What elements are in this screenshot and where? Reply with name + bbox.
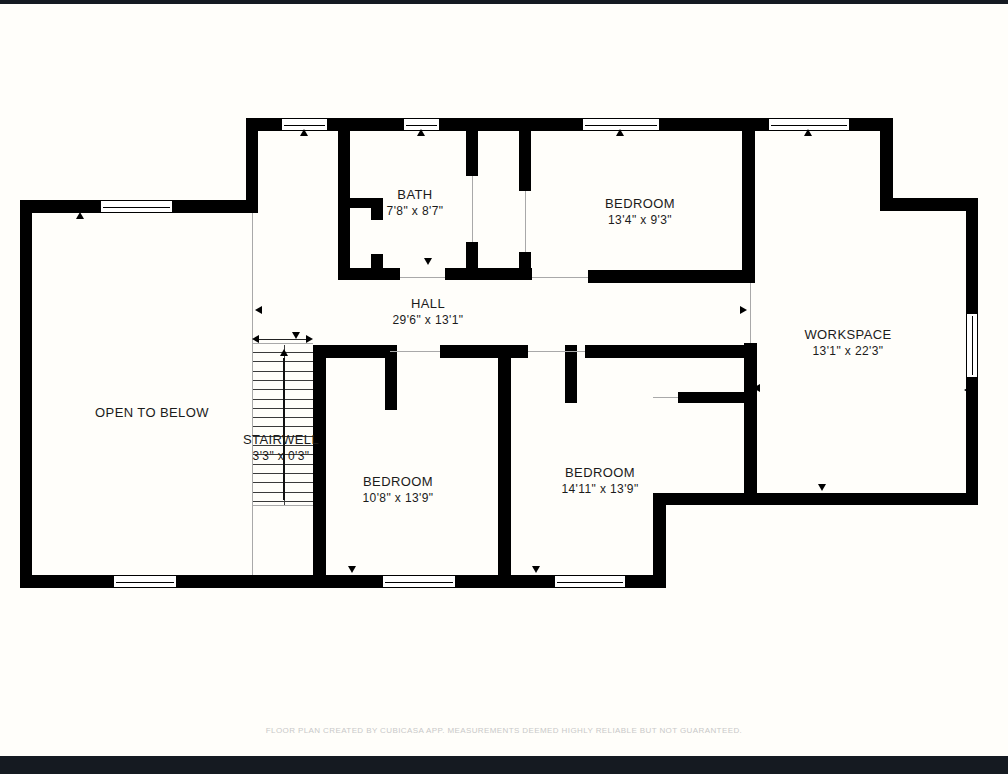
wall [678,392,753,403]
wall [742,118,755,283]
door-marker-up-icon [616,129,624,136]
window [382,575,456,588]
wall [653,493,666,588]
door-marker-down-icon [521,182,529,189]
window [113,575,177,588]
stair-measure-line [256,339,310,340]
stair-direction-arrow [283,358,285,500]
window [966,313,978,378]
room-boundary-line [400,277,445,278]
door-marker-down-icon [532,566,540,573]
room-boundary-line [252,343,313,344]
window [554,575,626,588]
wall [498,345,511,588]
door-marker-down-icon [348,566,356,573]
measure-arrow-icon [252,335,259,343]
door-marker-down-icon [818,484,826,491]
room-boundary-line [252,213,253,575]
measure-arrow-icon [306,335,313,343]
room-name: WORKSPACE [804,327,891,343]
wall [246,118,258,213]
door-marker-down-icon [424,258,432,265]
window [100,200,173,213]
door-marker-up-icon [300,129,308,136]
door-marker-right-icon [740,306,747,314]
room-dimensions: 10'8" x 13'9" [362,490,433,506]
wall [519,252,531,280]
wall [385,345,397,410]
floorplan-page: BATH7'8" x 8'7"BEDROOM13'4" x 9'3"HALL29… [0,0,1008,774]
wall [565,345,577,403]
footer-disclaimer: FLOOR PLAN CREATED BY CUBICASA APP. MEAS… [0,726,1008,735]
wall [371,198,383,220]
stair-tread [253,501,313,502]
wall [744,343,757,505]
room-dimensions: 13'4" x 9'3" [605,212,675,228]
room-name: HALL [392,296,463,312]
measure-arrow-icon [292,332,300,339]
wall [585,345,753,358]
bottom-letterbox-bar [0,756,1008,774]
stair-arrowhead-icon [280,349,288,356]
room-boundary-line [390,351,440,352]
wall [313,345,326,588]
door-marker-up-icon [804,129,812,136]
room-label-bedroom-top: BEDROOM13'4" x 9'3" [605,196,675,228]
room-name: STAIRWELL [243,432,319,448]
room-name: BEDROOM [362,474,433,490]
room-boundary-line [253,505,313,506]
room-label-hall: HALL29'6" x 13'1" [392,296,463,328]
room-boundary-line [653,397,678,398]
floorplan: BATH7'8" x 8'7"BEDROOM13'4" x 9'3"HALL29… [0,0,1008,774]
wall [440,345,528,358]
room-name: BEDROOM [561,465,638,481]
room-boundary-line [472,176,473,242]
room-dimensions: 3'3" x 0'3" [243,448,319,464]
wall [653,493,978,505]
room-label-stairwell: STAIRWELL3'3" x 0'3" [243,432,319,464]
door-marker-left-icon [964,386,971,394]
wall [880,118,893,211]
wall [588,270,753,283]
room-boundary-line [750,283,751,343]
wall [20,200,32,588]
door-marker-up-icon [417,129,425,136]
room-name: BATH [387,187,444,203]
wall [466,242,478,280]
wall [886,198,978,211]
wall [338,268,400,280]
door-marker-left-icon [255,306,262,314]
room-label-bedroom-right: BEDROOM14'11" x 13'9" [561,465,638,497]
room-dimensions: 7'8" x 8'7" [387,203,444,219]
room-dimensions: 13'1" x 22'3" [804,343,891,359]
room-dimensions: 29'6" x 13'1" [392,312,463,328]
room-label-workspace: WORKSPACE13'1" x 22'3" [804,327,891,359]
room-label-open-to-below: OPEN TO BELOW [95,405,209,421]
room-name: BEDROOM [605,196,675,212]
door-marker-up-icon [76,212,84,219]
door-marker-right-icon [466,156,473,164]
door-marker-right-icon [747,440,754,448]
room-dimensions: 14'11" x 13'9" [561,481,638,497]
wall [313,345,390,358]
door-marker-left-icon [753,384,760,392]
wall [466,131,478,176]
room-name: OPEN TO BELOW [95,405,209,421]
room-boundary-line [528,351,585,352]
room-label-bath: BATH7'8" x 8'7" [387,187,444,219]
room-boundary-line [525,191,526,252]
room-boundary-line [532,277,588,278]
room-label-bedroom-left: BEDROOM10'8" x 13'9" [362,474,433,506]
